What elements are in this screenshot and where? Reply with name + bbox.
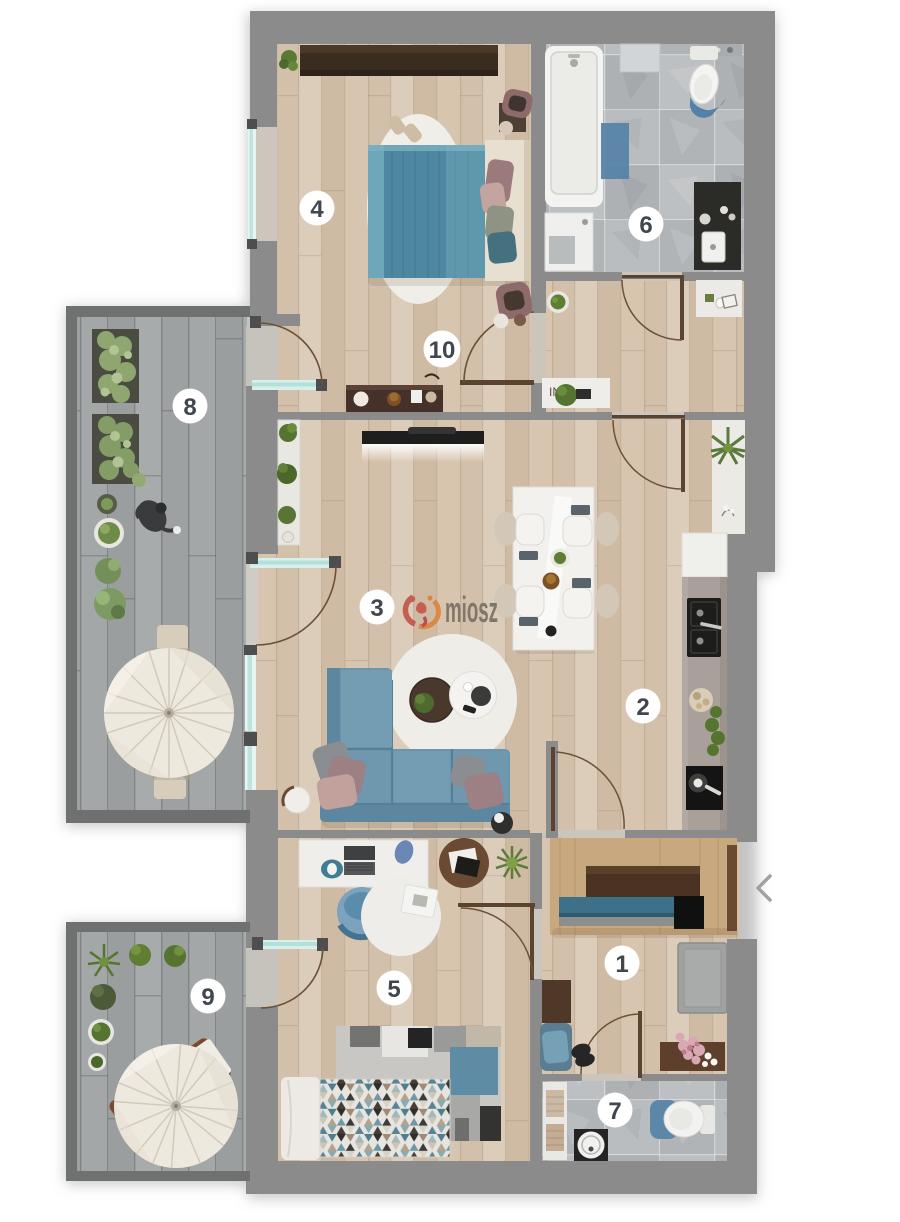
svg-text:miosz: miosz: [445, 591, 498, 631]
svg-text:10: 10: [429, 337, 456, 364]
svg-text:1: 1: [615, 951, 628, 978]
svg-text:6: 6: [639, 212, 652, 239]
svg-text:3: 3: [370, 595, 383, 622]
svg-text:9: 9: [201, 984, 214, 1011]
svg-text:2: 2: [636, 694, 649, 721]
svg-text:5: 5: [387, 976, 400, 1003]
svg-text:7: 7: [608, 1098, 621, 1125]
svg-text:8: 8: [183, 394, 196, 421]
svg-text:4: 4: [310, 196, 324, 223]
